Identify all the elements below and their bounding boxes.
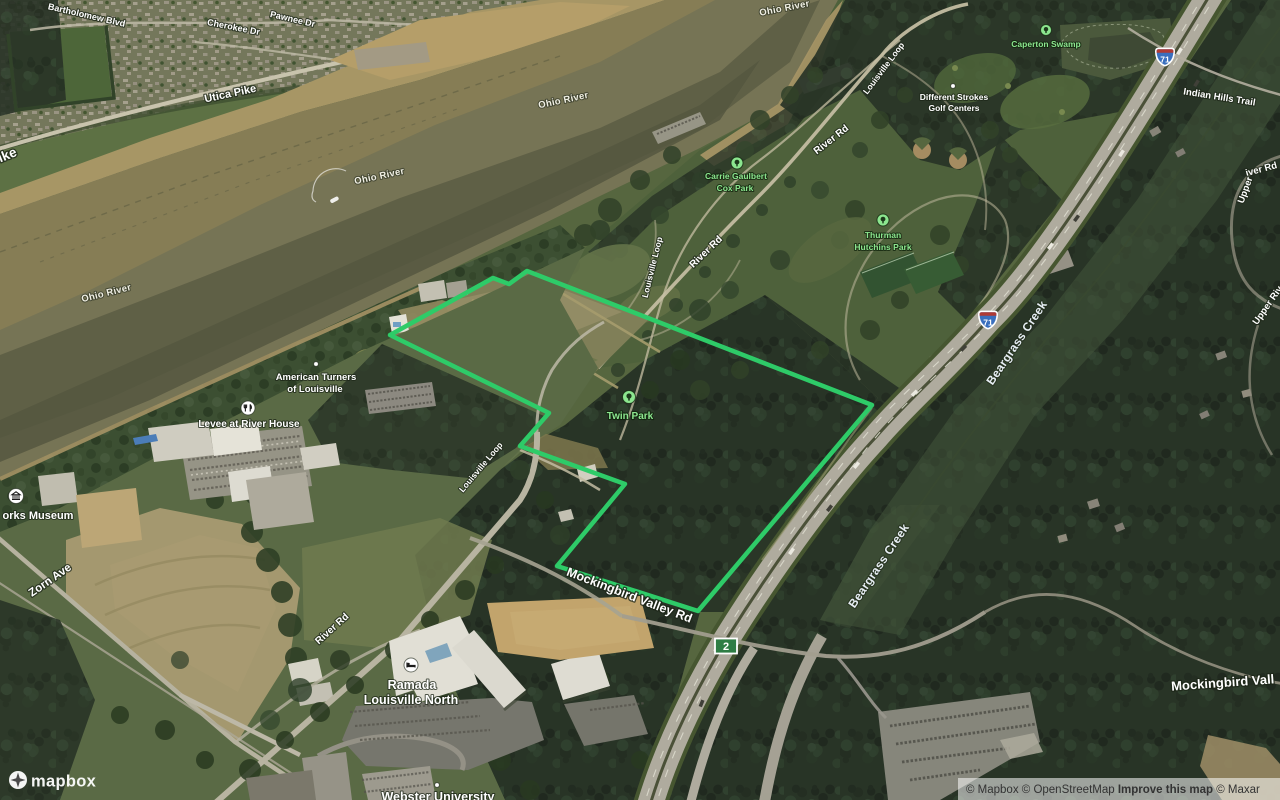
svg-text:Cox Park: Cox Park [717, 183, 754, 193]
svg-text:Louisville North: Louisville North [364, 693, 458, 707]
svg-text:© Mapbox © OpenStreetMap Impro: © Mapbox © OpenStreetMap Improve this ma… [966, 784, 1260, 796]
svg-text:Hutchins Park: Hutchins Park [854, 242, 911, 252]
svg-text:American Turners: American Turners [276, 372, 357, 383]
svg-text:Carrie Gaulbert: Carrie Gaulbert [705, 171, 767, 181]
svg-text:71: 71 [1160, 55, 1170, 65]
svg-text:Different Strokes: Different Strokes [920, 92, 989, 102]
svg-text:mapbox: mapbox [31, 773, 97, 791]
svg-text:Thurman: Thurman [865, 230, 901, 240]
svg-text:of Louisville: of Louisville [287, 384, 342, 395]
svg-text:2: 2 [723, 641, 729, 653]
svg-text:orks Museum: orks Museum [3, 510, 74, 522]
svg-text:Ramada: Ramada [388, 678, 438, 692]
svg-text:71: 71 [983, 318, 993, 328]
svg-text:Caperton Swamp: Caperton Swamp [1011, 39, 1080, 49]
svg-text:Golf Centers: Golf Centers [928, 103, 979, 113]
svg-text:Levee at River House: Levee at River House [198, 419, 300, 430]
svg-text:Twin Park: Twin Park [607, 411, 654, 422]
svg-text:Webster University: Webster University [381, 790, 494, 800]
